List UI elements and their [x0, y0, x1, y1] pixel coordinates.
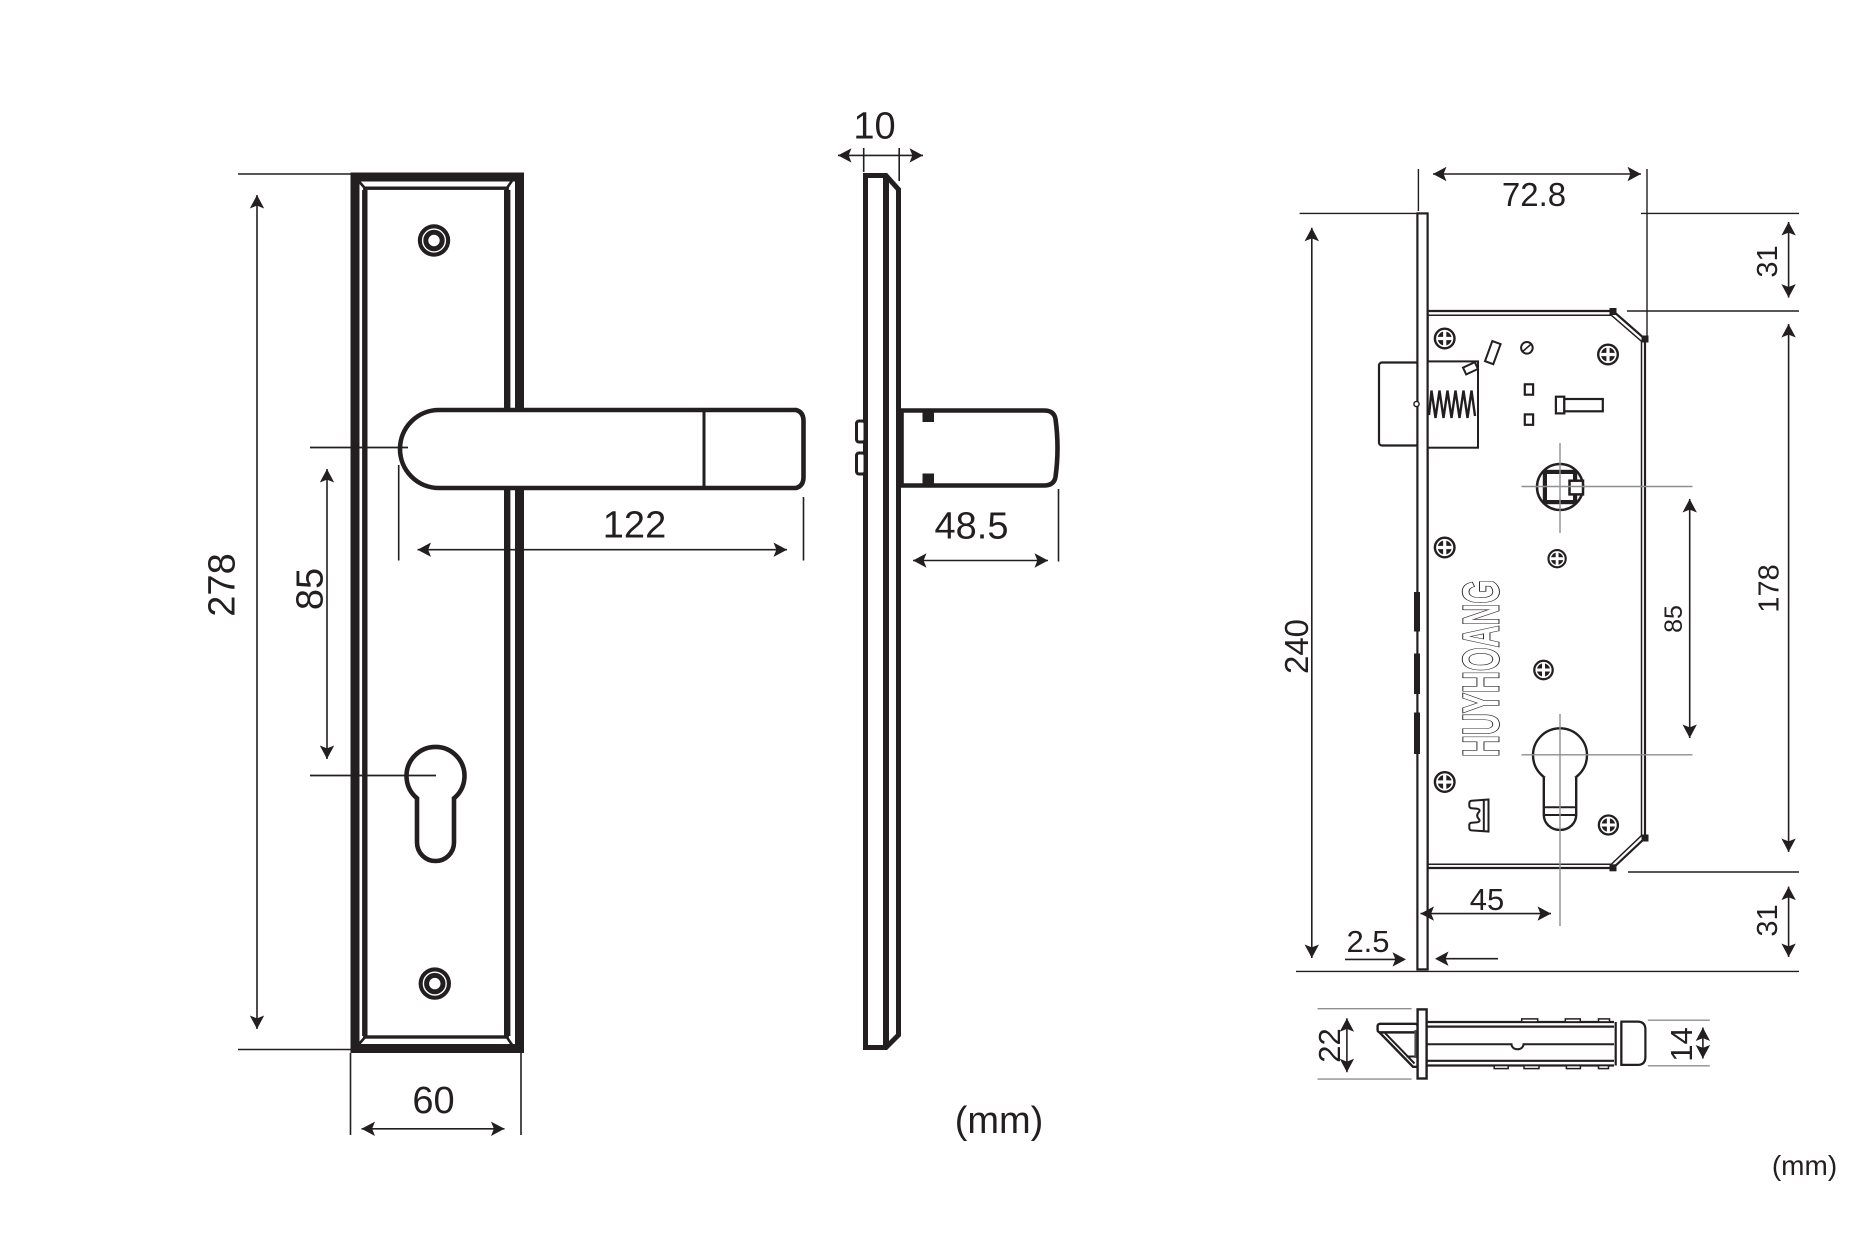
svg-text:60: 60	[412, 1080, 454, 1122]
svg-text:240: 240	[1278, 619, 1315, 674]
svg-text:HUYHOANG: HUYHOANG	[1453, 580, 1510, 757]
svg-text:31: 31	[1752, 245, 1784, 277]
svg-text:178: 178	[1754, 564, 1786, 612]
svg-text:278: 278	[202, 553, 244, 616]
svg-text:(mm): (mm)	[955, 1100, 1044, 1142]
svg-text:2.5: 2.5	[1346, 924, 1389, 959]
svg-text:14: 14	[1664, 1027, 1699, 1061]
svg-text:31: 31	[1752, 904, 1784, 936]
svg-text:45: 45	[1470, 882, 1504, 917]
svg-text:(mm): (mm)	[1772, 1150, 1837, 1181]
svg-text:122: 122	[603, 505, 666, 547]
svg-text:22: 22	[1312, 1028, 1347, 1062]
svg-text:85: 85	[1660, 605, 1688, 633]
svg-text:10: 10	[853, 106, 895, 148]
svg-text:85: 85	[290, 568, 332, 610]
svg-text:72.8: 72.8	[1502, 176, 1566, 213]
svg-text:48.5: 48.5	[935, 506, 1009, 548]
